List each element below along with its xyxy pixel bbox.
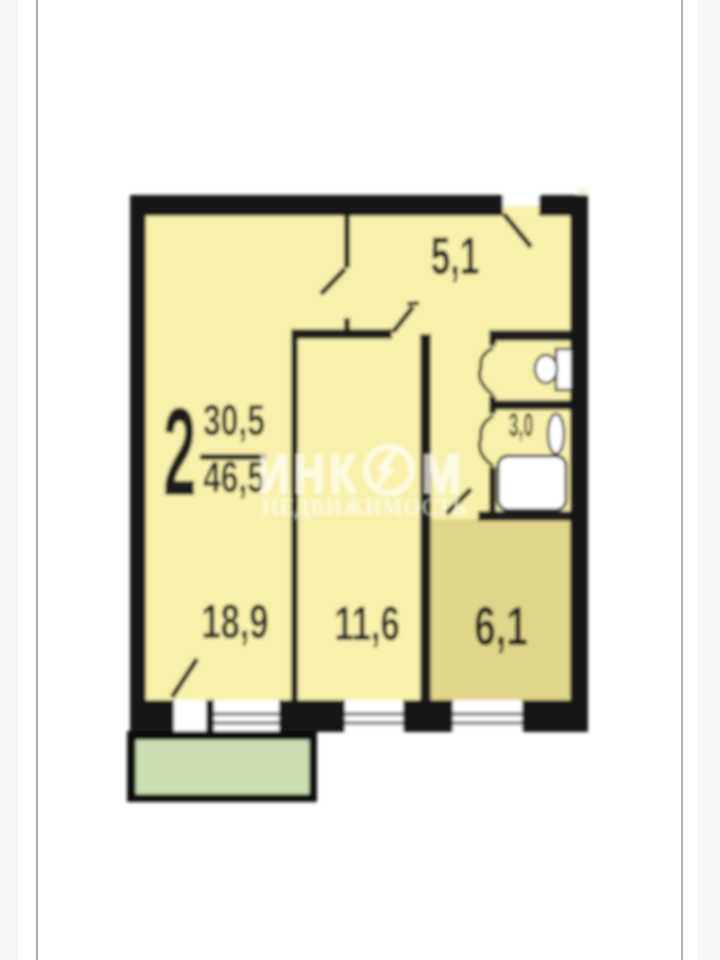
svg-text:11,6: 11,6	[334, 596, 399, 650]
svg-text:6,1: 6,1	[474, 596, 528, 657]
svg-text:2: 2	[163, 382, 196, 522]
svg-text:46,5: 46,5	[203, 453, 265, 502]
svg-text:5,1: 5,1	[431, 226, 480, 286]
svg-text:3,0: 3,0	[509, 409, 533, 444]
svg-text:30,5: 30,5	[203, 396, 265, 445]
svg-text:НЕДВИЖИМОСТЬ: НЕДВИЖИМОСТЬ	[262, 494, 468, 520]
svg-text:18,9: 18,9	[201, 594, 268, 648]
